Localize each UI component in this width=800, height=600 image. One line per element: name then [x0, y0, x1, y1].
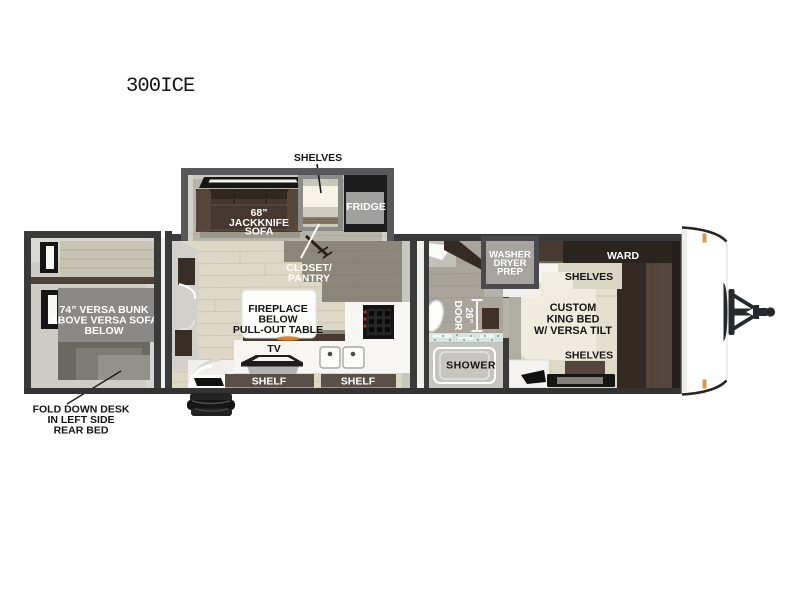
svg-text:300ICE: 300ICE	[126, 75, 195, 98]
svg-text:SHELF: SHELF	[252, 376, 287, 388]
svg-text:SHELF: SHELF	[341, 376, 376, 388]
svg-text:REAR BED: REAR BED	[54, 425, 109, 437]
svg-text:SHOWER: SHOWER	[446, 360, 496, 372]
svg-text:SHELVES: SHELVES	[565, 350, 613, 362]
svg-text:KING BED: KING BED	[547, 314, 600, 326]
svg-text:CUSTOM: CUSTOM	[550, 302, 597, 314]
svg-text:PULL-OUT TABLE: PULL-OUT TABLE	[233, 324, 323, 336]
svg-text:FRIDGE: FRIDGE	[346, 201, 386, 213]
svg-text:SHELVES: SHELVES	[294, 152, 342, 164]
svg-text:WARD: WARD	[607, 250, 639, 262]
svg-text:SOFA: SOFA	[245, 226, 274, 238]
svg-text:PANTRY: PANTRY	[288, 273, 330, 285]
svg-text:PREP: PREP	[497, 267, 524, 278]
svg-text:W/ VERSA TILT: W/ VERSA TILT	[534, 325, 612, 337]
svg-text:SHELVES: SHELVES	[565, 271, 613, 283]
svg-text:TV: TV	[267, 343, 280, 355]
svg-text:BELOW: BELOW	[84, 325, 123, 337]
